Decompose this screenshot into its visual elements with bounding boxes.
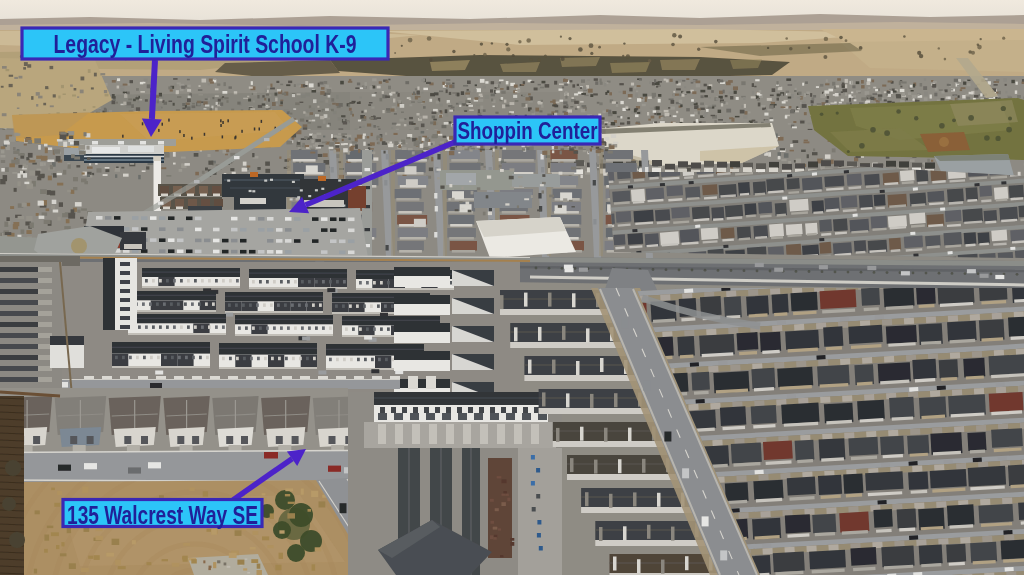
svg-text:Shoppin Center: Shoppin Center (458, 117, 598, 144)
svg-text:135 Walcrest Way SE: 135 Walcrest Way SE (67, 500, 258, 530)
svg-text:Legacy - Living Spirit School: Legacy - Living Spirit School K-9 (54, 30, 357, 58)
